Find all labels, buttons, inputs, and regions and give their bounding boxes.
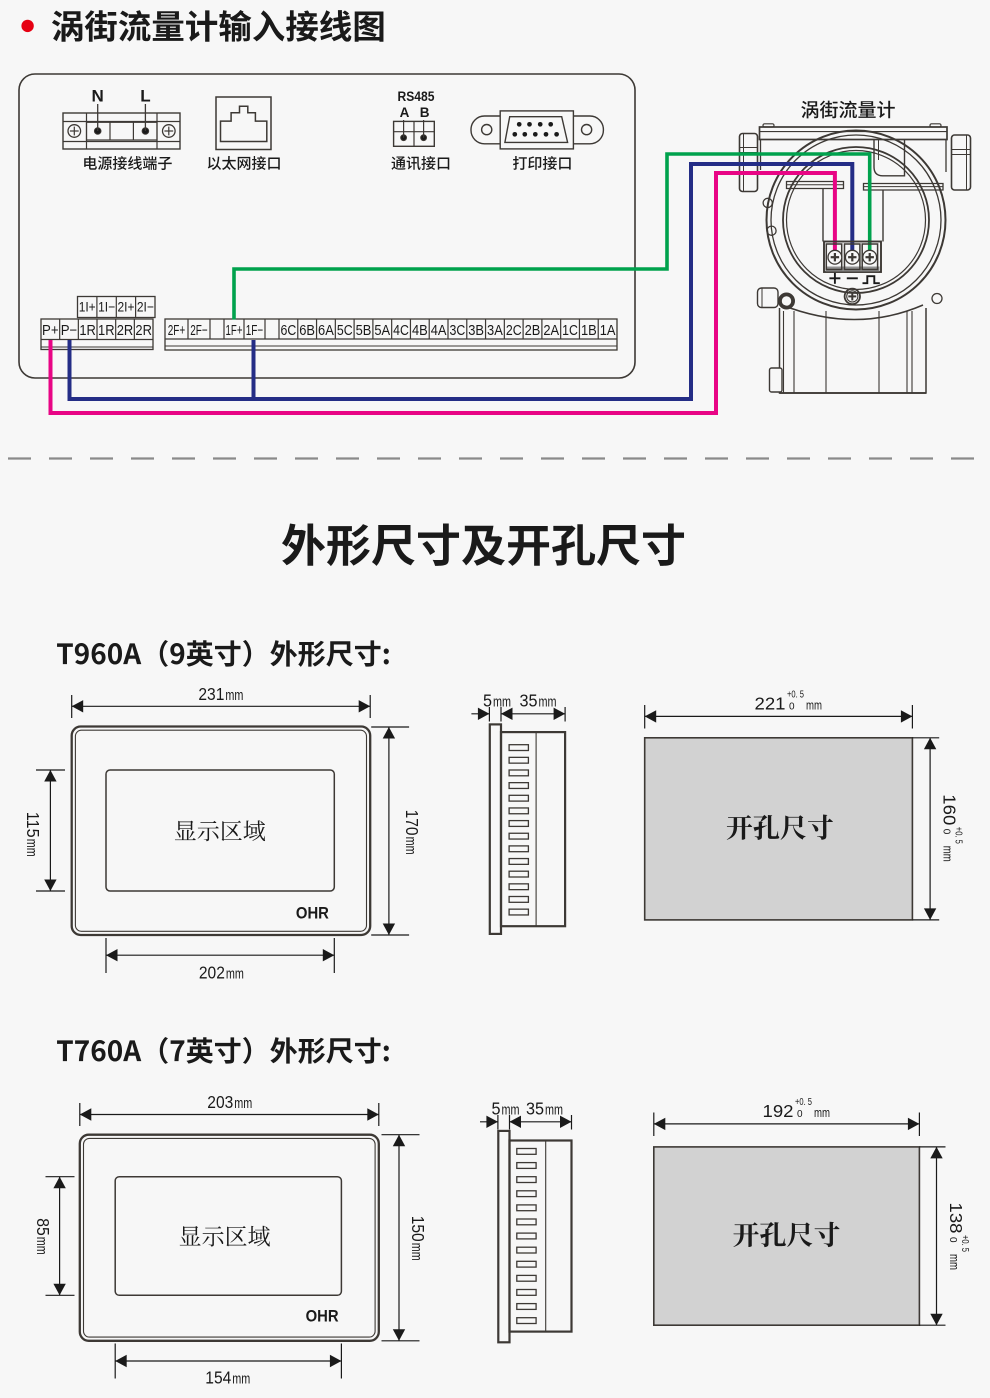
- svg-text:35: 35: [526, 1098, 544, 1118]
- svg-text:221: 221: [755, 693, 786, 713]
- svg-text:0: 0: [947, 1237, 958, 1243]
- svg-text:2B: 2B: [525, 323, 541, 339]
- svg-text:6A: 6A: [318, 323, 334, 339]
- svg-text:5A: 5A: [374, 323, 390, 339]
- svg-text:3A: 3A: [487, 323, 503, 339]
- svg-text:6B: 6B: [299, 323, 315, 339]
- svg-text:3C: 3C: [450, 323, 466, 339]
- svg-text:mm: mm: [493, 693, 511, 710]
- svg-text:1I−: 1I−: [98, 300, 115, 315]
- svg-text:160: 160: [940, 794, 960, 825]
- svg-text:4C: 4C: [393, 323, 409, 339]
- svg-text:1R: 1R: [79, 323, 96, 339]
- svg-text:85: 85: [33, 1218, 53, 1236]
- svg-text:170: 170: [402, 810, 422, 836]
- svg-text:mm: mm: [225, 687, 243, 704]
- svg-text:5C: 5C: [337, 323, 353, 339]
- svg-text:150: 150: [408, 1216, 428, 1242]
- svg-text:115: 115: [23, 812, 43, 838]
- svg-text:+0. 5: +0. 5: [953, 827, 964, 844]
- svg-text:OHR: OHR: [296, 905, 329, 923]
- svg-text:192: 192: [763, 1101, 794, 1121]
- svg-text:4A: 4A: [431, 323, 447, 339]
- svg-text:2C: 2C: [506, 323, 522, 339]
- svg-text:mm: mm: [234, 1095, 252, 1112]
- svg-text:2I−: 2I−: [137, 300, 154, 315]
- svg-text:mm: mm: [947, 1254, 961, 1270]
- svg-text:mm: mm: [941, 846, 955, 862]
- svg-text:+0. 5: +0. 5: [959, 1235, 970, 1252]
- svg-text:0: 0: [789, 701, 795, 712]
- svg-text:OHR: OHR: [306, 1308, 339, 1326]
- svg-text:mm: mm: [232, 1371, 250, 1388]
- svg-text:+0. 5: +0. 5: [795, 1097, 812, 1108]
- svg-text:1I+: 1I+: [79, 300, 96, 315]
- svg-text:mm: mm: [408, 1243, 425, 1261]
- svg-text:mm: mm: [545, 1101, 563, 1118]
- svg-text:231: 231: [198, 684, 224, 704]
- svg-text:mm: mm: [539, 693, 557, 710]
- svg-text:203: 203: [207, 1092, 233, 1112]
- svg-text:2F−: 2F−: [190, 323, 208, 339]
- svg-text:mm: mm: [402, 837, 419, 855]
- svg-text:6C: 6C: [281, 323, 297, 339]
- svg-text:L: L: [140, 87, 150, 106]
- svg-text:3B: 3B: [468, 323, 484, 339]
- svg-text:2I+: 2I+: [118, 300, 135, 315]
- svg-text:mm: mm: [806, 698, 822, 712]
- svg-text:1B: 1B: [581, 323, 597, 339]
- svg-text:N: N: [92, 87, 104, 106]
- svg-text:1F−: 1F−: [246, 323, 264, 339]
- svg-text:0: 0: [941, 829, 952, 835]
- svg-text:1A: 1A: [600, 323, 616, 339]
- svg-text:2A: 2A: [543, 323, 559, 339]
- svg-text:mm: mm: [226, 965, 244, 982]
- svg-text:202: 202: [199, 962, 225, 982]
- svg-text:154: 154: [205, 1368, 231, 1388]
- svg-text:4B: 4B: [412, 323, 428, 339]
- svg-text:mm: mm: [814, 1106, 830, 1120]
- svg-text:P+: P+: [42, 323, 59, 339]
- svg-text:0: 0: [797, 1109, 803, 1120]
- svg-text:2R: 2R: [117, 323, 134, 339]
- svg-text:mm: mm: [23, 839, 40, 857]
- svg-text:A: A: [400, 105, 410, 120]
- svg-text:1F+: 1F+: [226, 323, 243, 339]
- svg-text:P−: P−: [61, 323, 78, 339]
- svg-text:1C: 1C: [562, 323, 578, 339]
- svg-text:RS485: RS485: [398, 89, 435, 104]
- svg-text:35: 35: [520, 690, 538, 710]
- svg-text:5: 5: [492, 1098, 501, 1118]
- svg-text:2F+: 2F+: [168, 323, 186, 339]
- svg-text:5B: 5B: [356, 323, 372, 339]
- svg-text:mm: mm: [502, 1101, 520, 1118]
- svg-text:5: 5: [483, 690, 492, 710]
- svg-text:mm: mm: [33, 1237, 50, 1255]
- svg-text:1R: 1R: [98, 323, 115, 339]
- svg-text:B: B: [420, 105, 430, 120]
- svg-text:+0. 5: +0. 5: [787, 689, 804, 700]
- svg-text:138: 138: [946, 1203, 966, 1234]
- svg-text:2R: 2R: [135, 323, 152, 339]
